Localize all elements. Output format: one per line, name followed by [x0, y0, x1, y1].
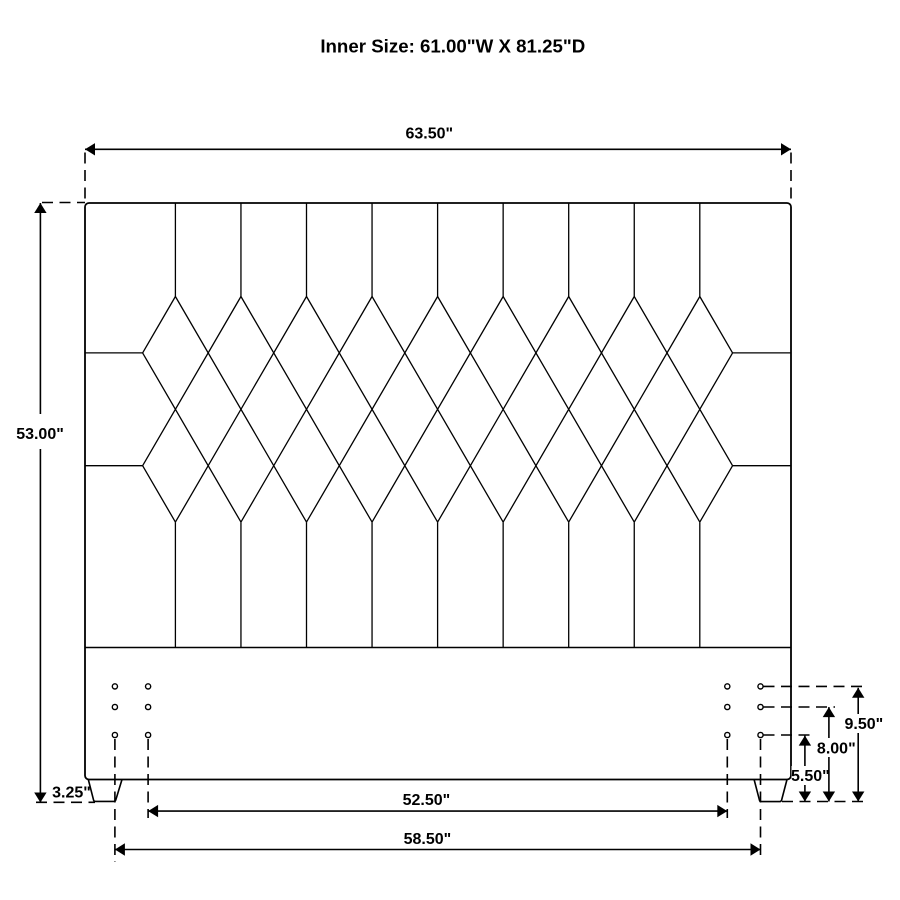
svg-text:58.50": 58.50"	[404, 831, 452, 848]
svg-text:52.50": 52.50"	[403, 792, 451, 809]
svg-text:8.00": 8.00"	[817, 740, 856, 757]
svg-text:3.25": 3.25"	[52, 784, 91, 801]
svg-text:63.50": 63.50"	[405, 126, 453, 143]
svg-text:53.00": 53.00"	[16, 426, 64, 443]
svg-text:9.50": 9.50"	[845, 716, 884, 733]
svg-text:Inner Size: 61.00"W X 81.25"D: Inner Size: 61.00"W X 81.25"D	[320, 35, 585, 56]
svg-text:5.50": 5.50"	[791, 768, 830, 785]
